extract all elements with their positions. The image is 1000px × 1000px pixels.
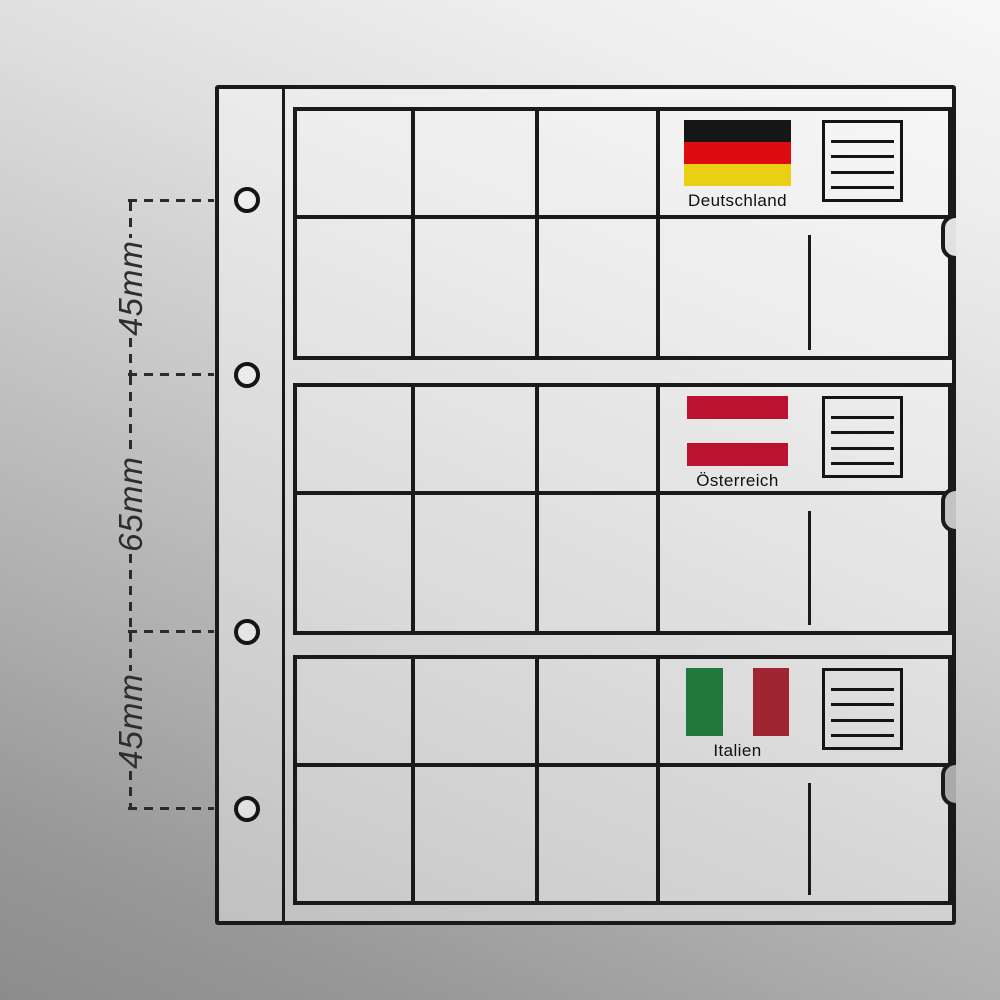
- dimension-label: 65mm: [108, 454, 153, 554]
- card-line: [831, 155, 894, 158]
- cell-divider: [411, 111, 415, 215]
- card-line: [831, 734, 894, 737]
- flag-stripe: [723, 668, 753, 736]
- card-line: [831, 719, 894, 722]
- header-row: Österreich: [297, 387, 948, 495]
- country-label: Deutschland: [688, 191, 787, 211]
- pocket-strip-italien: Italien: [293, 655, 952, 905]
- pocket-divider: [411, 219, 415, 356]
- flag-block: Italien: [680, 668, 795, 761]
- cell-divider: [411, 387, 415, 491]
- dimension-label: 45mm: [108, 671, 153, 771]
- card-line: [831, 703, 894, 706]
- card-line: [831, 186, 894, 189]
- header-row: Deutschland: [297, 111, 948, 219]
- pocket-slit: [808, 783, 811, 895]
- pocket-slit: [808, 235, 811, 350]
- dimension-span-middle: 65mm: [108, 376, 153, 631]
- cell-divider: [656, 111, 660, 215]
- dimension-dash-line: [129, 633, 132, 671]
- flag-stripe: [687, 419, 788, 443]
- card-line: [831, 171, 894, 174]
- cell-divider: [656, 659, 660, 763]
- card-line: [831, 416, 894, 419]
- cell-divider: [656, 387, 660, 491]
- flag-stripe: [687, 396, 788, 419]
- pocket-divider: [656, 767, 660, 901]
- pocket-divider: [535, 219, 539, 356]
- country-label: Österreich: [696, 471, 778, 491]
- pocket-row: [297, 767, 948, 901]
- flag-germany: [684, 120, 791, 186]
- pocket-row: [297, 495, 948, 631]
- flag-stripe: [684, 120, 791, 142]
- thumb-notch: [941, 487, 956, 533]
- flag-italy: [686, 668, 789, 736]
- dimension-dash-line: [129, 771, 132, 809]
- product-illustration: 45mm 65mm 45mm: [0, 0, 1000, 1000]
- album-page: Deutschland Österreich: [215, 85, 956, 925]
- cell-divider: [535, 387, 539, 491]
- flag-stripe: [687, 443, 788, 466]
- cell-divider: [411, 659, 415, 763]
- flag-block: Deutschland: [680, 120, 795, 211]
- label-card: [822, 120, 903, 202]
- flag-stripe: [684, 164, 791, 186]
- cell-divider: [535, 659, 539, 763]
- dimension-span-bottom: 45mm: [108, 633, 153, 808]
- punch-hole: [234, 362, 260, 388]
- pocket-strip-deutschland: Deutschland: [293, 107, 952, 360]
- card-line: [831, 462, 894, 465]
- pocket-divider: [656, 219, 660, 356]
- dimension-span-top: 45mm: [108, 202, 153, 374]
- thumb-notch: [941, 761, 956, 807]
- label-card: [822, 668, 903, 750]
- card-line: [831, 688, 894, 691]
- pocket-row: [297, 219, 948, 356]
- country-label: Italien: [713, 741, 761, 761]
- dimension-dash-line: [129, 376, 132, 454]
- dimension-dash-line: [129, 554, 132, 632]
- flag-stripe: [753, 668, 789, 736]
- card-line: [831, 447, 894, 450]
- dimension-dash-line: [129, 338, 132, 374]
- flag-stripe: [684, 142, 791, 164]
- dimension-label: 45mm: [108, 238, 153, 338]
- thumb-notch: [941, 214, 956, 260]
- pocket-divider: [411, 767, 415, 901]
- cell-divider: [535, 111, 539, 215]
- binding-strip: [219, 89, 285, 921]
- card-line: [831, 431, 894, 434]
- punch-hole: [234, 187, 260, 213]
- flag-stripe: [686, 668, 723, 736]
- pocket-divider: [656, 495, 660, 631]
- punch-hole: [234, 796, 260, 822]
- flag-block: Österreich: [680, 396, 795, 491]
- pocket-slit: [808, 511, 811, 625]
- pocket-divider: [535, 495, 539, 631]
- pocket-strip-oesterreich: Österreich: [293, 383, 952, 635]
- dimension-dash-line: [129, 202, 132, 238]
- pocket-divider: [411, 495, 415, 631]
- header-row: Italien: [297, 659, 948, 767]
- flag-austria: [687, 396, 788, 466]
- card-line: [831, 140, 894, 143]
- pocket-divider: [535, 767, 539, 901]
- label-card: [822, 396, 903, 478]
- punch-hole: [234, 619, 260, 645]
